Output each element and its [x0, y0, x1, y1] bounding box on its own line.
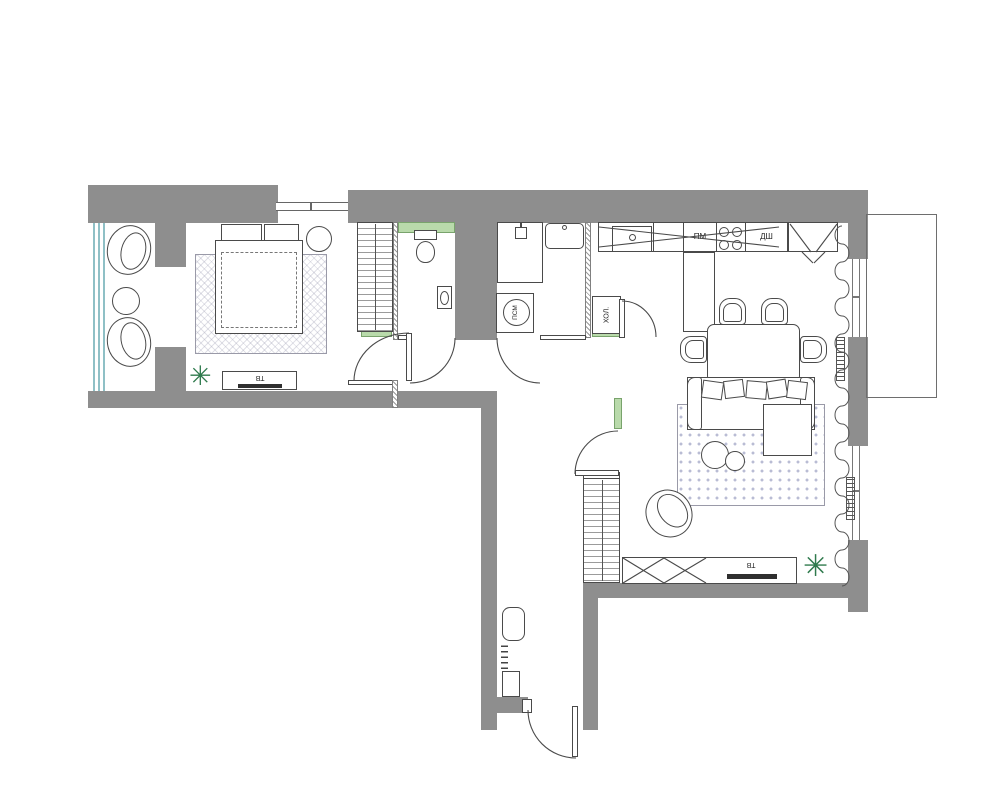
- sofa-cushion-5: [786, 380, 808, 400]
- sofa-chaise: [763, 404, 812, 456]
- bedroom-door-leaf: [406, 333, 412, 381]
- wall-corridor-right: [583, 598, 598, 730]
- bed-duvet: [221, 252, 297, 328]
- living-wardrobe: [583, 478, 620, 583]
- bedroom-tv: [238, 384, 282, 388]
- living-door-leaf: [575, 470, 619, 476]
- living-door-jamb-green: [614, 398, 622, 429]
- wall-bottom-left: [88, 391, 497, 408]
- entry-hooks: [501, 645, 508, 669]
- bedroom-armchair-top: [102, 220, 157, 279]
- entry-door-jamb: [522, 699, 532, 713]
- wall-corridor-left: [481, 408, 497, 730]
- corner-cabinet-v4: [814, 252, 825, 263]
- wc-sink-basin: [440, 291, 449, 305]
- corner-cabinet-v3: [802, 252, 813, 263]
- entry-door-arc: [528, 710, 576, 758]
- bedroom-top-window: [276, 202, 348, 211]
- wall-pilaster-top: [155, 223, 186, 267]
- bedroom-side-table: [112, 287, 140, 315]
- floor-plan: ТВ ✳ ПСМ ПМ ДШ ХОЛ. Т: [0, 0, 1000, 800]
- coffee-table-small: [725, 451, 745, 471]
- counter-divider-2: [683, 222, 684, 252]
- dining-chair-top-left: [719, 298, 746, 325]
- dining-chair-left: [680, 336, 707, 363]
- partition-bedroom: [348, 380, 393, 385]
- curtain-wave: [835, 226, 849, 586]
- bath-sink-faucet: [562, 225, 567, 230]
- living-door-arc: [575, 431, 618, 474]
- wall-pilaster-bottom: [155, 347, 186, 391]
- counter-divider-1: [653, 222, 654, 252]
- bedroom-left-window3: [103, 223, 105, 391]
- stove-burner-1: [719, 227, 729, 237]
- kitchen-sink-faucet: [629, 234, 636, 241]
- wall-right-upper: [848, 223, 868, 259]
- stove-burner-4: [732, 240, 742, 250]
- wall-pier-bath: [455, 193, 497, 340]
- bedroom-armchair-bottom: [102, 312, 157, 371]
- sofa-cushion-1: [701, 380, 724, 401]
- dining-chair-top-right: [761, 298, 788, 325]
- sofa-armrest-left: [687, 377, 702, 430]
- corner-cabinet: [788, 222, 838, 252]
- wc-door-arc: [410, 338, 455, 383]
- wall-living-bottom: [583, 583, 868, 598]
- balcony: [866, 214, 937, 398]
- shower-head-stem: [520, 222, 522, 228]
- entry-door-leaf: [572, 706, 578, 757]
- living-tv-console: [622, 557, 797, 584]
- dining-chair-right: [800, 336, 827, 363]
- sofa-cushion-4: [766, 379, 789, 400]
- bed-pillow-left: [221, 224, 262, 241]
- kitchen-island: [683, 252, 715, 332]
- sofa-cushion-3: [745, 380, 767, 400]
- wall-right-middle: [848, 337, 868, 446]
- bedroom-left-window: [93, 223, 95, 391]
- kitchen-door-arc: [622, 301, 656, 337]
- dining-table: [707, 324, 800, 383]
- sofa-cushion-2: [723, 379, 745, 399]
- counter-divider-4: [745, 222, 746, 252]
- partition-bath-door-jamb: [540, 335, 586, 340]
- bedroom-wardrobe: [357, 222, 393, 332]
- oven-cabinet-label: ДШ: [748, 231, 785, 243]
- radiator-upper: [836, 337, 845, 381]
- bedroom-top-window-mullion: [310, 202, 312, 211]
- dishwasher-label: ПМ: [687, 231, 713, 243]
- shower-head-icon: [515, 227, 527, 239]
- stove-burner-2: [732, 227, 742, 237]
- entry-shoe-cabinet: [502, 671, 520, 697]
- toilet-tank: [414, 230, 437, 240]
- bedroom-tv-label: ТВ: [247, 372, 273, 383]
- toilet-bowl: [416, 241, 435, 263]
- living-tv: [727, 574, 777, 579]
- wall-top-main: [348, 190, 868, 223]
- bedroom-left-window2: [98, 223, 100, 391]
- bedside-pouf: [306, 226, 332, 252]
- washing-machine-label: ПСМ: [503, 299, 530, 326]
- living-window-upper-mullion: [852, 296, 860, 298]
- kitchen-door-leaf: [619, 299, 625, 338]
- bedroom-plant-icon: ✳: [189, 363, 212, 390]
- partition-post: [392, 380, 398, 408]
- stove-burner-3: [719, 240, 729, 250]
- bath-door-arc: [497, 338, 540, 383]
- living-plant-icon: ✳: [803, 552, 828, 582]
- wall-top-left: [88, 185, 278, 223]
- counter-divider-3: [716, 222, 717, 252]
- bed-pillow-right: [264, 224, 299, 241]
- living-window-upper: [852, 259, 860, 337]
- radiator-lower: [846, 477, 855, 520]
- entry-bench: [502, 607, 525, 641]
- partition-wardrobe-wc: [393, 222, 398, 340]
- living-tv-label: ТВ: [738, 559, 764, 570]
- wall-right-lower: [848, 540, 868, 612]
- bedroom-door-arc: [354, 333, 409, 381]
